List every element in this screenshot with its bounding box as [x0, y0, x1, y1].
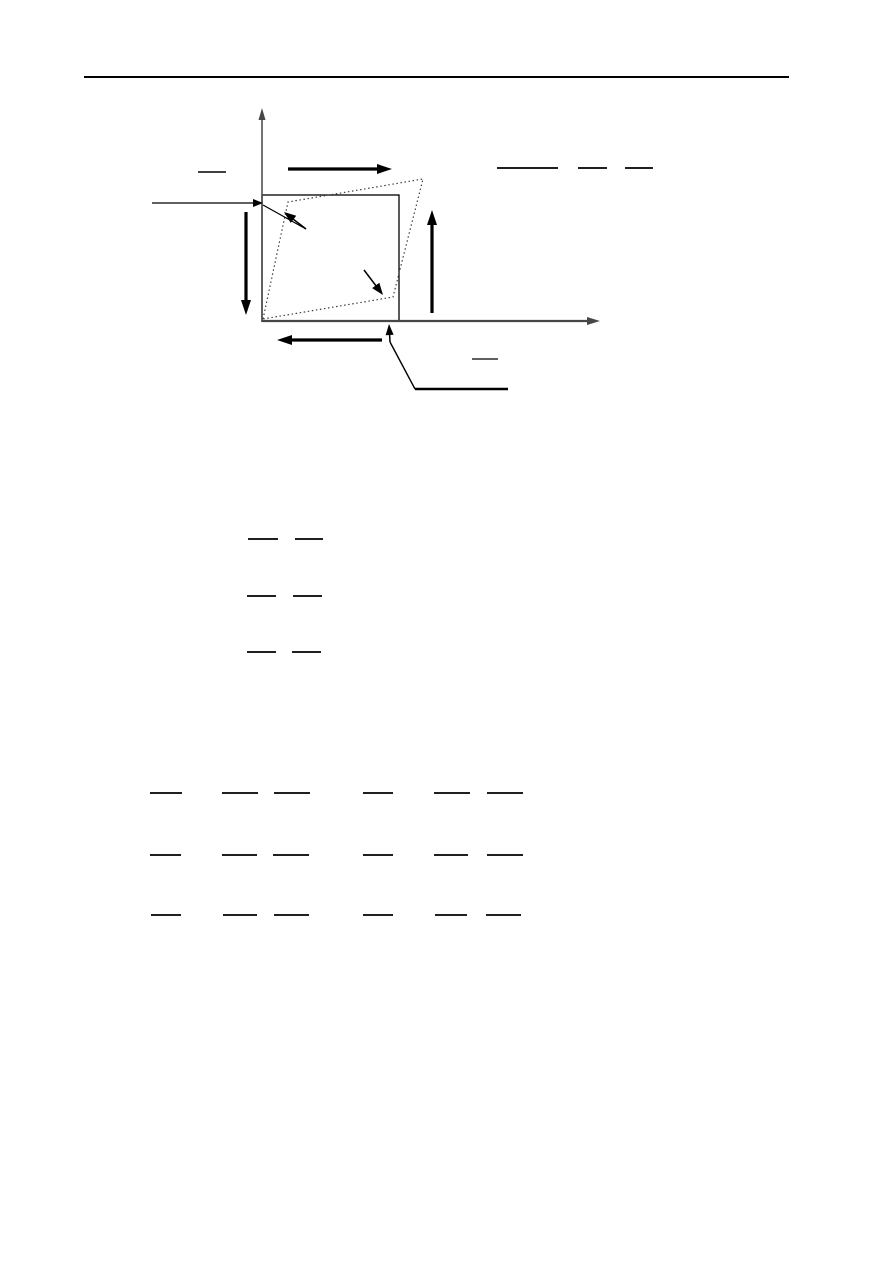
page-canvas — [0, 0, 893, 1263]
y-axis-arrow-head — [259, 108, 266, 120]
mid-equation-fraction-bars — [247, 539, 323, 652]
x-axis-arrow-head — [587, 317, 600, 325]
bottom-equation-fraction-bars — [150, 793, 523, 915]
corner-leader-tail — [263, 205, 306, 229]
right-shear-arrow-head — [427, 210, 437, 225]
undeformed-square — [262, 195, 399, 321]
document-page — [0, 0, 893, 1263]
bottom-shear-arrow-head — [277, 335, 292, 345]
label-leader-diagonal — [390, 342, 415, 389]
top-shear-arrow-head — [377, 164, 392, 174]
left-shear-arrow-head — [241, 300, 251, 315]
shear-deformation-figure — [152, 108, 653, 389]
lower-corner-pointer-head — [372, 283, 383, 295]
axis-pointer-head — [386, 324, 394, 335]
